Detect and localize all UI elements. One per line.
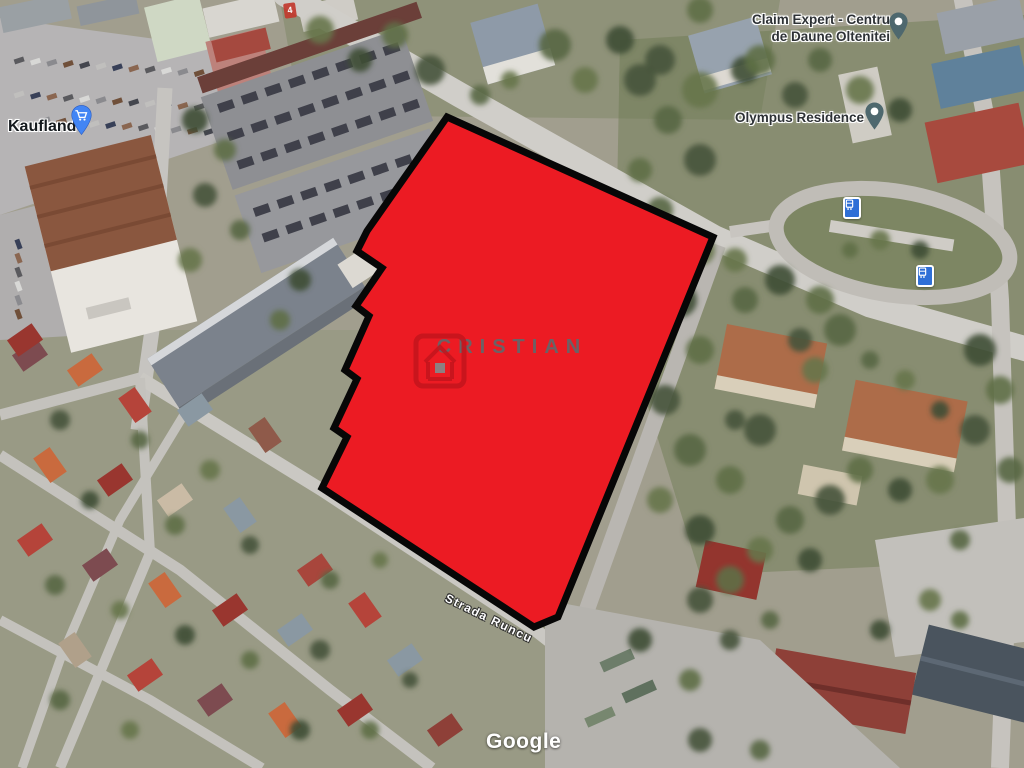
satellite-map-image: CRISTIAN Kaufland Claim Expert - Centru … — [0, 0, 1024, 768]
place-label-kaufland: Kaufland — [8, 118, 76, 136]
property-polygon-shape — [322, 117, 713, 627]
place-label-claim-expert: Claim Expert - Centru de Daune Oltenitei — [752, 11, 890, 45]
tram-stop-icon — [843, 197, 861, 219]
place-label-olympus-residence: Olympus Residence — [735, 110, 864, 125]
route-marker-icon: 4 — [283, 2, 297, 19]
olympus-map-pin — [864, 101, 885, 131]
kaufland-map-pin — [70, 104, 93, 136]
house-logo-icon — [412, 332, 468, 390]
claim-expert-map-pin — [888, 11, 909, 41]
agency-watermark: CRISTIAN — [412, 332, 612, 359]
tram-stop-icon — [916, 265, 934, 287]
google-logo: Google — [486, 730, 561, 754]
